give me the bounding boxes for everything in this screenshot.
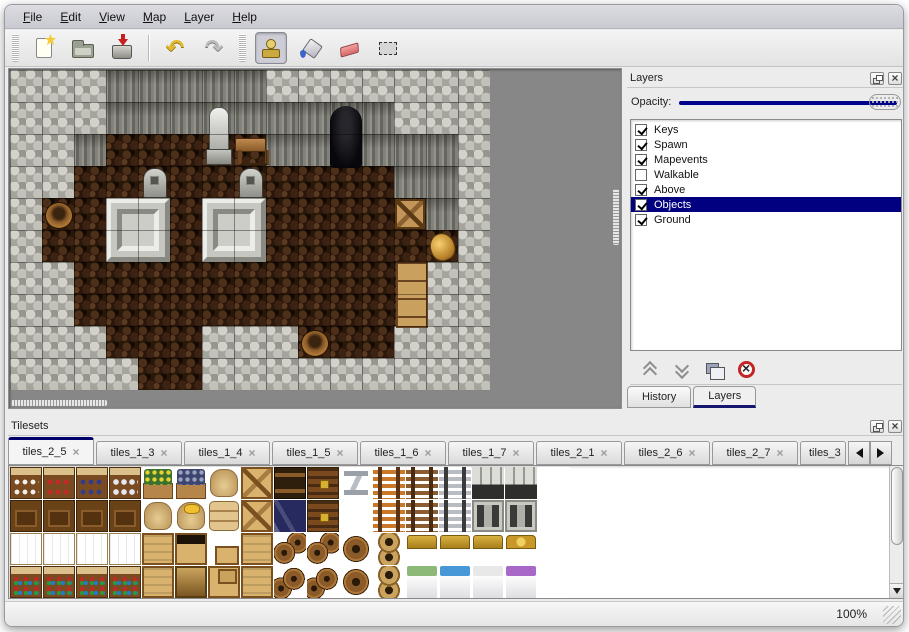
tileset-cell-barrel[interactable] [340,566,372,598]
map-object-platform[interactable] [202,198,266,262]
tileset-cell-bed_green[interactable] [406,566,438,598]
map-tile-floor[interactable] [362,294,394,326]
map-object-tombstone[interactable] [138,166,170,198]
menu-map[interactable]: Map [135,8,174,26]
tileset-tab-tiles_1_3[interactable]: tiles_1_3× [96,441,182,465]
close-tab-icon[interactable]: × [689,446,696,460]
close-tab-icon[interactable]: × [337,446,344,460]
tileset-cell-bed_white[interactable] [472,566,504,598]
map-tile-wall[interactable] [426,166,458,198]
map-tile-rock[interactable] [458,262,490,294]
tileset-cell-empty[interactable] [538,500,570,532]
map-tile-floor[interactable] [266,198,298,230]
tileset-tab-tiles_2_5[interactable]: tiles_2_5× [8,437,94,465]
tileset-cell-ladder_o[interactable] [373,500,405,532]
map-tile-floor[interactable] [202,294,234,326]
layer-row-spawn[interactable]: Spawn [631,137,901,152]
map-tile-rock[interactable] [362,70,394,102]
tileset-tab-label: tiles_1_6 [374,447,418,459]
tileset-cell-ladder_g[interactable] [439,500,471,532]
map-tile-rock[interactable] [458,358,490,390]
map-tile-floor[interactable] [202,166,234,198]
map-tile-wall[interactable] [234,70,266,102]
tileset-cell-barrel[interactable] [340,533,372,565]
layer-row-mapevents[interactable]: Mapevents [631,152,901,167]
map-tile-floor[interactable] [298,262,330,294]
layer-visibility-checkbox[interactable] [635,139,647,151]
layer-visibility-checkbox[interactable] [635,214,647,226]
tileset-cell-metal_z[interactable] [340,467,372,499]
map-tile-rock[interactable] [42,134,74,166]
move-layer-up-button[interactable] [640,360,660,380]
map-tile-rock[interactable] [266,358,298,390]
zoom-level: 100% [836,607,867,621]
map-object-vase[interactable] [426,230,458,262]
map-tile-rock[interactable] [74,326,106,358]
map-tile-rock[interactable] [458,134,490,166]
map-tile-rock[interactable] [394,70,426,102]
tileset-cell-empty[interactable] [538,533,570,565]
map-tile-rock[interactable] [234,358,266,390]
map-tile-floor[interactable] [74,230,106,262]
map-tile-wall[interactable] [362,134,394,166]
map-canvas[interactable] [10,70,490,390]
layer-row-ground[interactable]: Ground [631,212,901,227]
tileset-cell-pots[interactable] [373,566,405,598]
tileset-cell-crate_top[interactable] [142,533,174,565]
select-tool-button[interactable] [372,32,404,64]
close-panel-icon[interactable] [888,72,902,85]
map-tile-wall[interactable] [426,134,458,166]
map-tile-rock[interactable] [42,166,74,198]
map-tile-rock[interactable] [394,326,426,358]
tileset-cell-shelf_top[interactable] [43,533,75,565]
map-tile-wall[interactable] [202,70,234,102]
map-tile-floor[interactable] [330,294,362,326]
map-tile-rock[interactable] [458,166,490,198]
map-object-barrel[interactable] [298,326,330,358]
layer-visibility-checkbox[interactable] [635,199,647,211]
map-tile-rock[interactable] [42,358,74,390]
close-tab-icon[interactable]: × [425,446,432,460]
map-tile-rock[interactable] [426,262,458,294]
map-tile-wall[interactable] [106,70,138,102]
map-tile-rock[interactable] [426,358,458,390]
layer-label: Walkable [654,169,699,181]
map-tile-rock[interactable] [394,358,426,390]
tileset-cell-arch[interactable] [472,467,504,499]
map-tile-floor[interactable] [266,294,298,326]
tileset-cell-shelf_red[interactable] [43,467,75,499]
map-tile-floor[interactable] [138,262,170,294]
open-tool-button[interactable] [67,32,99,64]
close-tab-icon[interactable]: × [601,446,608,460]
map-tile-rock[interactable] [394,102,426,134]
map-object-tombstone[interactable] [234,166,266,198]
map-tile-wall[interactable] [138,70,170,102]
map-tile-wall[interactable] [138,102,170,134]
map-tile-rock[interactable] [10,102,42,134]
tileset-cell-bed_h3[interactable] [505,533,537,565]
map-tile-floor[interactable] [266,262,298,294]
tileset-cell-sack[interactable] [142,500,174,532]
tileset-tab-tiles_2_6[interactable]: tiles_2_6× [624,441,710,465]
opacity-slider-handle[interactable] [869,94,901,110]
map-tile-floor[interactable] [138,326,170,358]
map-tile-floor[interactable] [42,230,74,262]
toolbar-grip[interactable] [12,34,19,62]
tileset-cell-shelf_goods[interactable] [43,566,75,598]
map-tile-wall[interactable] [298,134,330,166]
map-tile-wall[interactable] [266,102,298,134]
opacity-slider[interactable] [679,94,901,110]
tileset-cell-shelf_goods[interactable] [109,566,141,598]
map-tile-floor[interactable] [170,358,202,390]
tileset-cell-crate_dark[interactable] [274,467,306,499]
map-tile-rock[interactable] [266,326,298,358]
tileset-scrollbar-thumb[interactable] [891,467,903,545]
map-tile-floor[interactable] [362,326,394,358]
stamp-tool-button[interactable] [255,32,287,64]
map-tile-floor[interactable] [266,230,298,262]
tileset-tab-label: tiles_2_5 [22,446,66,458]
map-tile-wall[interactable] [426,198,458,230]
map-tile-rock[interactable] [42,102,74,134]
tileset-cell-ladder_g[interactable] [439,467,471,499]
map-tile-wall[interactable] [170,70,202,102]
tileset-grid[interactable] [10,467,570,598]
tileset-cell-shelf_goods[interactable] [10,566,42,598]
fill-tool-button[interactable] [294,32,326,64]
tileset-cell-crate_x[interactable] [241,467,273,499]
map-tile-wall[interactable] [394,166,426,198]
layer-row-keys[interactable]: Keys [631,122,901,137]
map-tile-floor[interactable] [298,198,330,230]
map-tile-rock[interactable] [458,326,490,358]
map-tile-rock[interactable] [10,70,42,102]
map-tile-rock[interactable] [10,262,42,294]
map-tile-wall[interactable] [106,102,138,134]
map-object-shelf[interactable] [394,262,426,326]
toolbar-grip[interactable] [239,34,246,62]
tileset-cell-shelf_jar[interactable] [109,467,141,499]
tileset-tab-tiles_1_6[interactable]: tiles_1_6× [360,441,446,465]
tileset-cell-barrels_b[interactable] [307,566,339,598]
map-tile-floor[interactable] [298,230,330,262]
tileset-cell-crate_top[interactable] [142,566,174,598]
tileset-cell-shelf_top[interactable] [10,533,42,565]
menu-view[interactable]: View [91,8,133,26]
map-tile-rock[interactable] [234,326,266,358]
tileset-cell-arch[interactable] [505,467,537,499]
close-panel-icon[interactable] [888,420,902,433]
map-tile-rock[interactable] [74,102,106,134]
close-tab-icon[interactable]: × [777,446,784,460]
map-tile-wall[interactable] [170,102,202,134]
menu-help[interactable]: Help [224,8,265,26]
map-tile-rock[interactable] [458,294,490,326]
menu-file[interactable]: File [15,8,50,26]
map-tile-rock[interactable] [266,70,298,102]
tileset-tab-tiles_1_7[interactable]: tiles_1_7× [448,441,534,465]
tileset-cell-barrels_b[interactable] [274,566,306,598]
map-tile-rock[interactable] [458,70,490,102]
map-tile-floor[interactable] [106,166,138,198]
tileset-cell-shelf_blue[interactable] [76,467,108,499]
map-tile-rock[interactable] [458,230,490,262]
map-tile-floor[interactable] [138,134,170,166]
map-object-barrel[interactable] [42,198,74,230]
map-vertical-scrollbar[interactable] [613,189,619,245]
tileset-cell-crate_x[interactable] [241,500,273,532]
tileset-cell-chest[interactable] [307,467,339,499]
menu-edit[interactable]: Edit [52,8,89,26]
map-tile-floor[interactable] [234,294,266,326]
layer-buttons-bar [630,355,902,385]
close-tab-icon[interactable]: × [249,446,256,460]
map-tile-wall[interactable] [394,134,426,166]
tileset-tab-label: tiles_1_7 [462,447,506,459]
map-tile-floor[interactable] [106,326,138,358]
map-tile-floor[interactable] [330,262,362,294]
layers-panel: Layers Opacity: KeysSpawnMapeventsWalkab… [627,69,904,410]
map-tile-floor[interactable] [394,230,426,262]
map-tile-rock[interactable] [426,102,458,134]
tileset-tab-tiles_2_7[interactable]: tiles_2_7× [712,441,798,465]
map-tile-floor[interactable] [170,230,202,262]
tileset-cell-cab[interactable] [10,500,42,532]
map-tile-floor[interactable] [74,198,106,230]
map-object-crate[interactable] [394,198,426,230]
tileset-tab-tiles_3[interactable]: tiles_3 [800,441,846,465]
tileset-cell-crate_dk[interactable] [175,566,207,598]
tileset-cell-cab[interactable] [109,500,141,532]
new-tool-button[interactable] [28,32,60,64]
map-tile-floor[interactable] [170,198,202,230]
tileset-cell-planter[interactable] [142,467,174,499]
select-icon [379,42,397,55]
tileset-cell-shelf_dish[interactable] [10,467,42,499]
resize-grip[interactable] [883,606,901,624]
map-tile-rock[interactable] [426,326,458,358]
map-tile-rock[interactable] [202,358,234,390]
layer-label: Objects [654,199,691,211]
map-tile-floor[interactable] [106,294,138,326]
map-tile-floor[interactable] [298,166,330,198]
map-tile-floor[interactable] [138,294,170,326]
tileset-cell-ladder_b[interactable] [406,467,438,499]
map-tile-rock[interactable] [426,294,458,326]
opacity-row: Opacity: [627,88,904,116]
layer-row-walkable[interactable]: Walkable [631,167,901,182]
map-tile-rock[interactable] [10,134,42,166]
close-tab-icon[interactable]: × [513,446,520,460]
map-tile-floor[interactable] [330,198,362,230]
tileset-cell-ladder_o[interactable] [373,467,405,499]
tileset-cell-bed_h[interactable] [439,533,471,565]
map-tile-floor[interactable] [74,294,106,326]
map-tile-wall[interactable] [362,102,394,134]
map-tile-wall[interactable] [74,134,106,166]
tileset-cell-chest[interactable] [307,500,339,532]
tileset-cell-bed_h[interactable] [472,533,504,565]
status-bar: 100% [5,601,903,626]
tileset-cell-navy_pile[interactable] [274,500,306,532]
tileset-cell-door[interactable] [505,500,537,532]
tileset-cell-empty[interactable] [340,500,372,532]
tileset-tab-tiles_1_4[interactable]: tiles_1_4× [184,441,270,465]
layer-visibility-checkbox[interactable] [635,124,647,136]
map-tile-wall[interactable] [234,102,266,134]
undo-tool-button[interactable] [159,32,191,64]
map-tile-rock[interactable] [10,166,42,198]
tileset-cell-crate_top[interactable] [241,566,273,598]
close-tab-icon[interactable]: × [161,446,168,460]
tileset-cell-box_gray[interactable] [175,467,207,499]
tab-scroll-right-button[interactable] [870,441,892,465]
map-tile-wall[interactable] [266,134,298,166]
tileset-cell-crate_top[interactable] [241,533,273,565]
dock-tab-history[interactable]: History [627,386,691,408]
map-horizontal-scrollbar[interactable] [11,400,107,406]
tileset-cell-barrels_t[interactable] [307,533,339,565]
map-tile-floor[interactable] [74,166,106,198]
map-tile-rock[interactable] [426,70,458,102]
map-tile-floor[interactable] [362,230,394,262]
map-tile-rock[interactable] [74,358,106,390]
map-tile-wall[interactable] [298,102,330,134]
map-object-statue[interactable] [202,102,234,166]
tileset-cell-sack_gold[interactable] [175,500,207,532]
map-tile-rock[interactable] [106,358,138,390]
tileset-cell-bed_purple[interactable] [505,566,537,598]
map-tile-floor[interactable] [170,326,202,358]
map-tile-floor[interactable] [170,262,202,294]
map-object-cave[interactable] [330,106,362,168]
map-tile-floor[interactable] [330,166,362,198]
opacity-slider-track[interactable] [679,101,897,105]
map-tile-floor[interactable] [234,262,266,294]
tileset-cell-crate_sm[interactable] [208,533,240,565]
map-tile-rock[interactable] [298,70,330,102]
map-object-table[interactable] [234,134,266,166]
redo-tool-button[interactable] [198,32,230,64]
map-tile-floor[interactable] [138,358,170,390]
map-tile-rock[interactable] [42,326,74,358]
tilesets-panel: Tilesets tiles_2_5×tiles_1_3×tiles_1_4×t… [8,417,904,601]
duplicate-layer-button[interactable] [704,360,724,380]
layer-visibility-checkbox[interactable] [635,154,647,166]
tileset-cell-cab[interactable] [76,500,108,532]
tileset-cell-pots[interactable] [373,533,405,565]
tileset-content[interactable] [8,465,904,599]
layer-label: Keys [654,124,678,136]
map-tile-rock[interactable] [10,358,42,390]
layer-visibility-checkbox[interactable] [635,169,647,181]
tileset-cell-crate_open[interactable] [175,533,207,565]
map-tile-rock[interactable] [10,198,42,230]
tileset-tab-tiles_2_1[interactable]: tiles_2_1× [536,441,622,465]
map-tile-floor[interactable] [266,166,298,198]
tileset-cell-door[interactable] [472,500,504,532]
map-tile-floor[interactable] [170,294,202,326]
tileset-cell-empty[interactable] [538,566,570,598]
arrow-down-icon [893,588,901,598]
close-tab-icon[interactable]: × [73,445,80,459]
map-tile-rock[interactable] [10,326,42,358]
map-tile-rock[interactable] [74,70,106,102]
map-tile-floor[interactable] [170,134,202,166]
map-tile-floor[interactable] [330,326,362,358]
float-panel-icon[interactable] [870,72,884,85]
menu-layer[interactable]: Layer [176,8,222,26]
map-tile-rock[interactable] [42,294,74,326]
tileset-cell-bed_blue[interactable] [439,566,471,598]
map-tile-floor[interactable] [106,262,138,294]
tileset-cell-bed_h[interactable] [406,533,438,565]
tab-scroll-left-button[interactable] [848,441,870,465]
tileset-tab-label: tiles_2_6 [638,447,682,459]
delete-layer-button[interactable] [736,360,756,380]
map-tile-rock[interactable] [10,230,42,262]
map-tile-floor[interactable] [298,294,330,326]
map-tile-floor[interactable] [362,166,394,198]
move-layer-down-button[interactable] [672,360,692,380]
map-tile-rock[interactable] [298,358,330,390]
map-tile-floor[interactable] [362,262,394,294]
float-panel-icon[interactable] [870,420,884,433]
map-tile-rock[interactable] [458,198,490,230]
map-tile-rock[interactable] [330,358,362,390]
tileset-scrollbar[interactable] [889,466,904,598]
tileset-cell-empty[interactable] [538,467,570,499]
map-tile-floor[interactable] [170,166,202,198]
layers-panel-title: Layers [630,72,866,84]
scroll-down-button[interactable] [890,583,904,598]
eraser-tool-button[interactable] [333,32,365,64]
map-tile-floor[interactable] [106,134,138,166]
tileset-cell-crate_st[interactable] [208,566,240,598]
map-tile-floor[interactable] [74,262,106,294]
map-tile-rock[interactable] [10,294,42,326]
layer-row-objects[interactable]: Objects [631,197,901,212]
save-tool-button[interactable] [106,32,138,64]
tileset-cell-ladder_b[interactable] [406,500,438,532]
dock-tab-layers[interactable]: Layers [693,386,756,408]
tileset-cell-shelf_top[interactable] [109,533,141,565]
map-object-platform[interactable] [106,198,170,262]
tileset-cell-cab[interactable] [43,500,75,532]
map-tile-floor[interactable] [202,262,234,294]
map-view[interactable] [8,68,622,409]
map-tile-floor[interactable] [362,198,394,230]
layer-visibility-checkbox[interactable] [635,184,647,196]
layer-row-above[interactable]: Above [631,182,901,197]
tileset-tab-tiles_1_5[interactable]: tiles_1_5× [272,441,358,465]
tileset-cell-shelf_goods[interactable] [76,566,108,598]
map-tile-floor[interactable] [330,230,362,262]
map-tile-rock[interactable] [42,262,74,294]
tileset-cell-sack_stack[interactable] [208,500,240,532]
tileset-cell-shelf_top[interactable] [76,533,108,565]
map-tile-rock[interactable] [362,358,394,390]
map-tile-rock[interactable] [330,70,362,102]
map-tile-rock[interactable] [202,326,234,358]
tileset-cell-sack[interactable] [208,467,240,499]
map-tile-rock[interactable] [42,70,74,102]
map-tile-rock[interactable] [458,102,490,134]
tileset-cell-barrels_t[interactable] [274,533,306,565]
